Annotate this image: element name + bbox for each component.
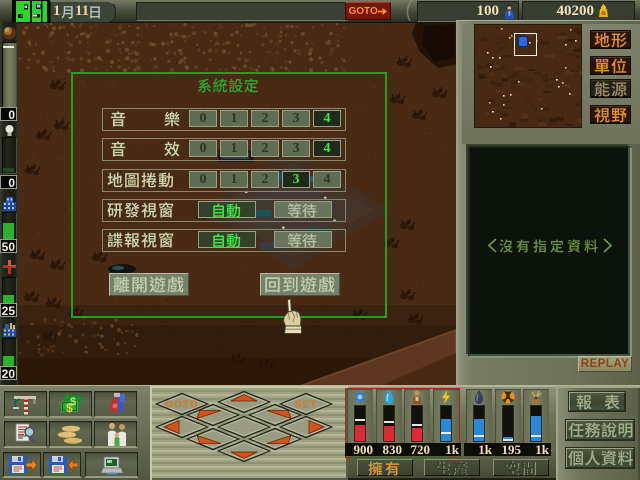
svg-text:$: $ (70, 396, 76, 408)
